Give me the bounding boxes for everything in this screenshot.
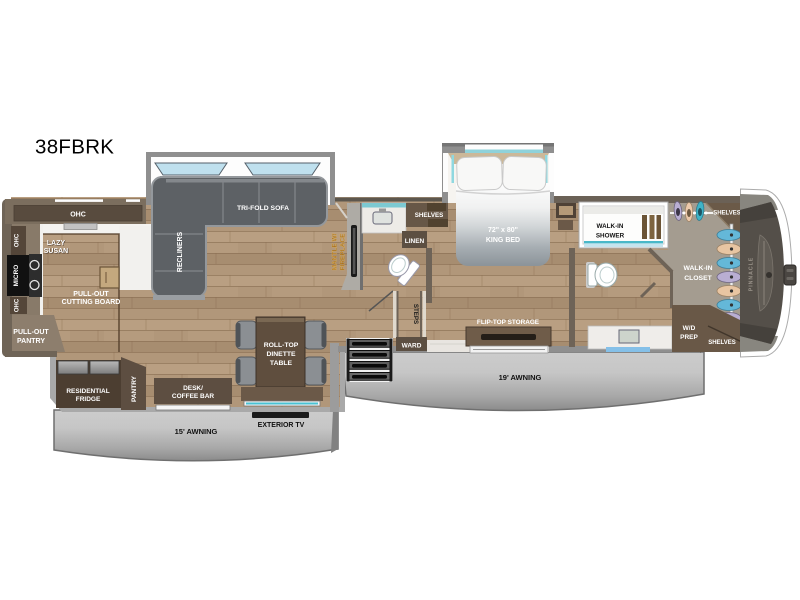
svg-text:CUTTING BOARD: CUTTING BOARD bbox=[62, 299, 121, 306]
svg-text:W/D: W/D bbox=[683, 325, 696, 332]
svg-text:OHC: OHC bbox=[15, 233, 21, 247]
svg-text:EXTERIOR TV: EXTERIOR TV bbox=[258, 422, 305, 429]
svg-text:PANTRY: PANTRY bbox=[17, 338, 45, 345]
svg-text:CLOSET: CLOSET bbox=[684, 275, 712, 282]
svg-text:WALK-IN: WALK-IN bbox=[597, 223, 624, 230]
svg-text:FLIP-TOP STORAGE: FLIP-TOP STORAGE bbox=[477, 319, 540, 326]
svg-text:SHELVES: SHELVES bbox=[415, 212, 443, 219]
svg-text:RECLINERS: RECLINERS bbox=[177, 231, 184, 272]
svg-text:FRIDGE: FRIDGE bbox=[76, 396, 101, 403]
svg-text:MICRO: MICRO bbox=[13, 265, 20, 287]
svg-text:RESIDENTIAL: RESIDENTIAL bbox=[66, 388, 109, 395]
svg-text:TABLE: TABLE bbox=[270, 360, 293, 367]
svg-text:ROLL-TOP: ROLL-TOP bbox=[264, 342, 299, 349]
svg-text:PINNACLE: PINNACLE bbox=[749, 257, 755, 292]
svg-text:PANTRY: PANTRY bbox=[131, 375, 138, 402]
svg-text:FIREPLACE: FIREPLACE bbox=[340, 233, 347, 271]
svg-text:PULL-OUT: PULL-OUT bbox=[13, 329, 49, 336]
svg-text:DESK/: DESK/ bbox=[183, 385, 203, 392]
svg-text:38FBRK: 38FBRK bbox=[35, 136, 114, 159]
svg-text:PREP: PREP bbox=[680, 334, 698, 341]
svg-text:OHC: OHC bbox=[15, 298, 21, 312]
svg-text:SHELVES: SHELVES bbox=[708, 340, 736, 346]
svg-text:72" x 80": 72" x 80" bbox=[488, 227, 518, 234]
svg-text:STEPS: STEPS bbox=[412, 304, 419, 324]
svg-text:TRI-FOLD SOFA: TRI-FOLD SOFA bbox=[237, 205, 289, 212]
svg-text:KING BED: KING BED bbox=[486, 237, 520, 244]
svg-text:SUSAN: SUSAN bbox=[44, 248, 69, 255]
svg-text:DINETTE: DINETTE bbox=[266, 351, 296, 358]
svg-text:PULL-OUT: PULL-OUT bbox=[73, 291, 109, 298]
svg-text:WALK-IN: WALK-IN bbox=[683, 265, 712, 272]
svg-text:SHELVES: SHELVES bbox=[713, 211, 741, 217]
svg-text:15' AWNING: 15' AWNING bbox=[175, 427, 218, 436]
svg-text:MANTLE W/: MANTLE W/ bbox=[332, 233, 339, 270]
svg-text:OHC: OHC bbox=[70, 212, 86, 219]
svg-text:LAZY: LAZY bbox=[47, 240, 66, 247]
svg-text:WARD: WARD bbox=[402, 343, 422, 350]
svg-text:SHOWER: SHOWER bbox=[596, 233, 625, 240]
svg-text:COFFEE BAR: COFFEE BAR bbox=[172, 393, 215, 400]
svg-text:LINEN: LINEN bbox=[405, 238, 425, 245]
svg-text:19' AWNING: 19' AWNING bbox=[499, 373, 542, 382]
